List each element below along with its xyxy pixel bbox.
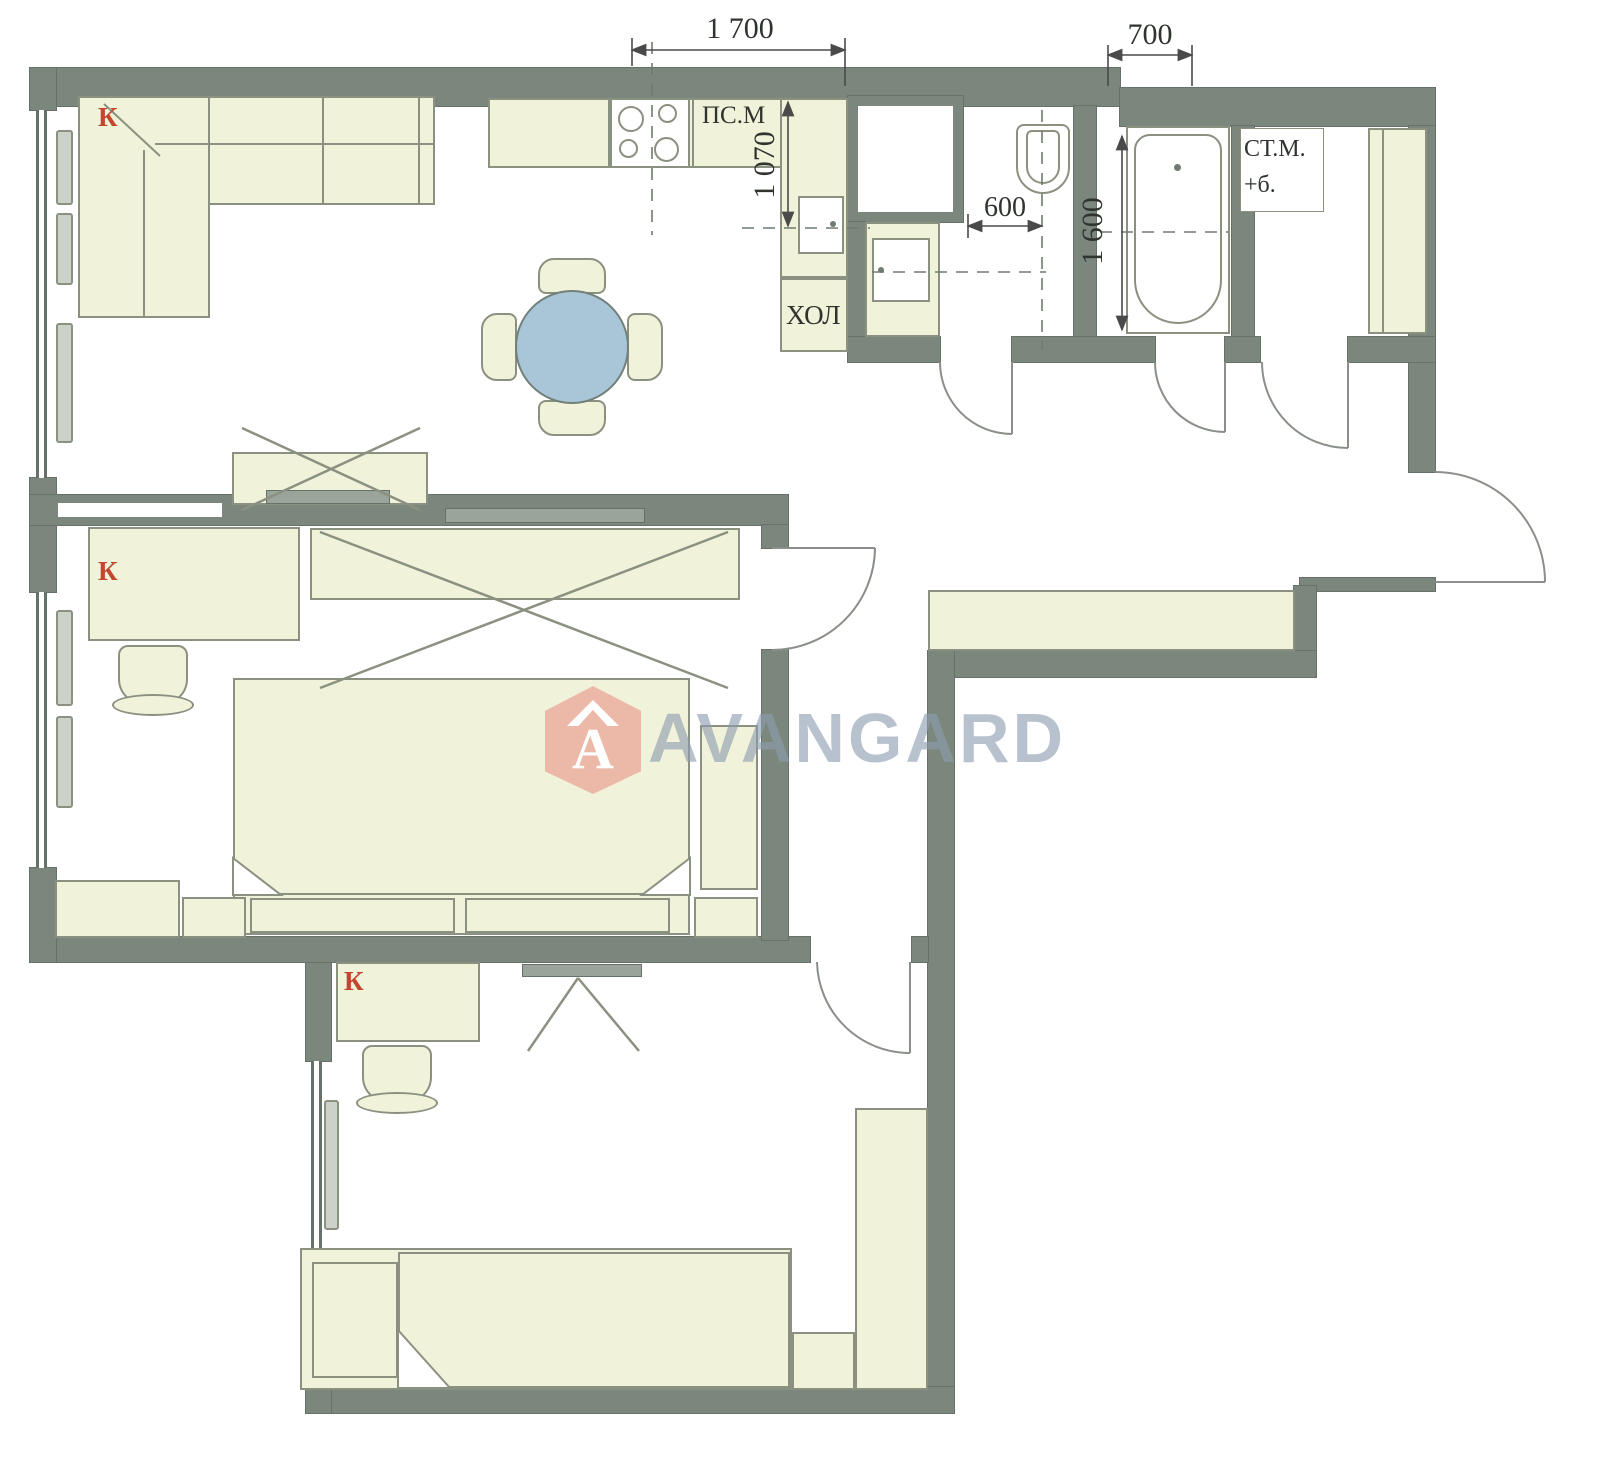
tv-cross-living — [242, 428, 420, 510]
tv-cone-kids — [528, 978, 639, 1051]
bed-fold-left — [233, 858, 281, 895]
dim-text-700: 700 — [1110, 18, 1190, 52]
label-washer-2: +б. — [1244, 172, 1276, 199]
label-fridge: ХОЛ — [786, 300, 841, 331]
dim-text-1600: 1 600 — [1076, 174, 1110, 288]
bathroom-door — [1155, 362, 1225, 432]
tv-cross-bedroom — [320, 532, 728, 688]
kids-bed-fold — [398, 1330, 450, 1388]
mark-computer-living: К — [98, 102, 118, 133]
dim-text-1700: 1 700 — [660, 12, 820, 46]
dim-text-600: 600 — [968, 192, 1042, 224]
watermark-brand: AVANGARD — [648, 698, 1066, 778]
mark-computer-bedroom: К — [98, 556, 118, 587]
mark-computer-kids: К — [344, 966, 364, 997]
bed-fold-right — [642, 858, 690, 895]
label-dishwasher: ПС.М — [702, 102, 765, 130]
storage-room-door — [1262, 362, 1348, 448]
bedroom-door — [772, 548, 875, 650]
logo-letter: A — [545, 720, 641, 778]
label-washer-1: СТ.М. — [1244, 136, 1306, 163]
kids-room-door — [817, 962, 910, 1053]
toilet-door — [940, 362, 1012, 434]
floor-plan: 1 700 700 1 070 600 1 600 ПС.М ХОЛ СТ.М.… — [0, 0, 1600, 1469]
entrance-door — [1435, 472, 1545, 582]
